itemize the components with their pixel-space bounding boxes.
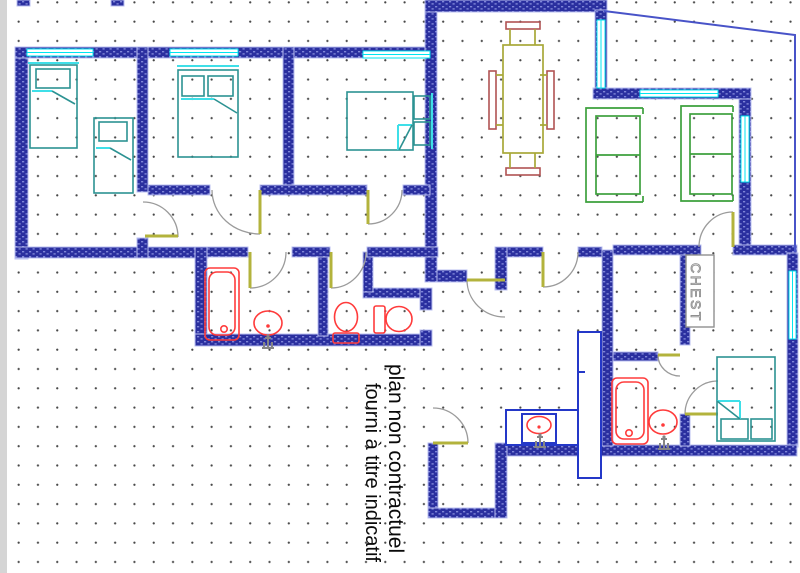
- door-bedroom1: [143, 202, 178, 237]
- single-bed-2: [94, 118, 133, 193]
- door-bathroom2: [658, 355, 680, 376]
- double-bed-room3: [347, 92, 432, 150]
- single-bed-1: [28, 63, 79, 148]
- door-bathroom1: [250, 252, 286, 288]
- chest: CHEST: [686, 255, 714, 327]
- dining-table: [503, 45, 543, 153]
- dining-chair-right: [540, 71, 554, 129]
- dining-chair-bottom: [506, 153, 540, 175]
- sofa-1: [586, 108, 643, 202]
- dining-chair-top: [506, 22, 540, 45]
- sink-2: [649, 410, 677, 434]
- door-wc1: [331, 252, 366, 288]
- door-living-room: [699, 212, 733, 247]
- chest-label: CHEST: [688, 263, 704, 323]
- tall-cabinet: [578, 332, 601, 478]
- door-bedroom3: [368, 190, 402, 224]
- dining-chair-left: [489, 71, 503, 129]
- double-bed-room4: [717, 357, 775, 441]
- disclaimer-text: plan non contractuel fourni à titre indi…: [361, 364, 407, 562]
- sofa-2: [681, 106, 733, 201]
- door-bedroom2: [212, 190, 260, 234]
- sink-1: [254, 311, 282, 335]
- kitchen-counter: [506, 410, 578, 445]
- floor-plan-canvas: CHEST plan non contractuel fourni à titr…: [0, 0, 800, 573]
- disclaimer-line2: fourni à titre indicatif: [361, 383, 383, 562]
- balcony-outline: [604, 11, 795, 252]
- door-kitchen: [543, 252, 578, 287]
- door-bedroom4: [685, 381, 718, 414]
- toilet-2: [374, 306, 412, 333]
- disclaimer-line1: plan non contractuel: [384, 364, 407, 553]
- double-bed-room2: [177, 66, 239, 157]
- bathtub-2: [612, 378, 648, 444]
- bathtub-1: [205, 268, 239, 340]
- floor-plan-drawing: CHEST plan non contractuel fourni à titr…: [0, 0, 800, 573]
- door-entry: [433, 408, 468, 443]
